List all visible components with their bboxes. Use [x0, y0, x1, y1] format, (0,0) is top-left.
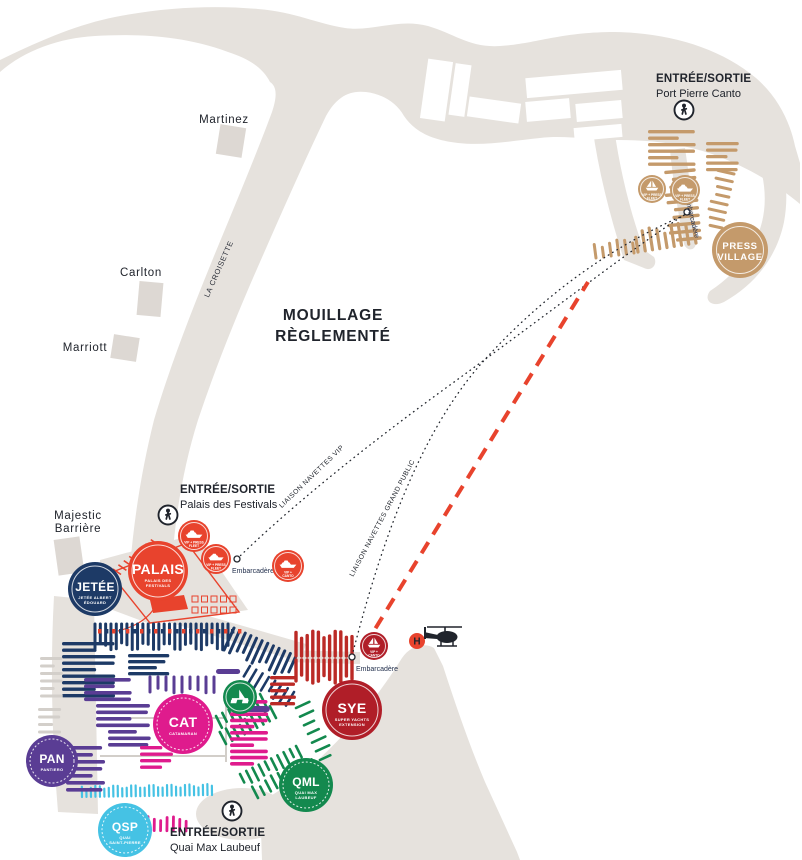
boat: [648, 143, 696, 146]
svg-text:PRESS: PRESS: [722, 241, 757, 252]
shuttle-circle-vip-canto: VIP +CANTO: [272, 550, 304, 582]
boat: [671, 227, 674, 247]
shuttle-line-grand-public: [352, 214, 687, 656]
boat: [230, 750, 268, 754]
boat: [108, 730, 137, 734]
hotel-majestic-line1: Majestic: [54, 510, 102, 522]
entrance-palais-line2: Palais des Festivals: [180, 499, 278, 511]
boat: [230, 731, 268, 735]
boat: [709, 209, 725, 213]
shuttle-circle-sye-canto: VIP +CANTO: [360, 632, 388, 660]
boat: [710, 217, 723, 220]
entrance-icon-palais: [159, 506, 178, 525]
boat: [717, 194, 729, 197]
shuttle-gp-label: LIAISON NAVETTES GRAND PUBLIC: [349, 459, 417, 578]
boat: [40, 680, 63, 683]
boat: [38, 716, 60, 719]
boat: [98, 629, 101, 634]
boat: [140, 766, 162, 769]
boat: [253, 673, 262, 688]
fleet-circle-canto-sail: VIP + PRESSFLEET: [638, 175, 666, 203]
boat: [636, 237, 638, 252]
badge-cat: CAT CATAMARAN: [153, 694, 213, 754]
notice-mouillage-line2: RÈGLEMENTÉ: [275, 328, 391, 345]
fleet-circle-canto-motor: VIP + PRESSFLEET: [670, 175, 700, 205]
boat: [610, 243, 612, 256]
boat: [105, 629, 108, 634]
embarcadere-label-sye: Embarcadère: [356, 666, 398, 673]
boat: [119, 629, 122, 634]
boat: [648, 137, 679, 140]
boat: [128, 666, 157, 669]
svg-text:FLEET: FLEET: [189, 544, 199, 548]
boat: [140, 746, 162, 749]
boat: [706, 162, 739, 165]
boat: [62, 662, 115, 665]
svg-text:FLEET: FLEET: [211, 567, 221, 571]
boat: [168, 629, 171, 634]
boat: [154, 629, 157, 634]
embarcadere-marker-palais: [234, 556, 240, 562]
boat: [96, 704, 150, 708]
boat: [66, 781, 105, 785]
boat: [112, 629, 115, 634]
boat: [230, 719, 268, 723]
boat: [133, 629, 136, 634]
boat: [140, 629, 143, 634]
boat: [648, 130, 695, 133]
boat: [96, 717, 131, 721]
boat: [666, 170, 694, 172]
boat: [66, 788, 102, 792]
svg-text:SYE: SYE: [338, 700, 367, 716]
boat: [633, 243, 634, 253]
boat: [270, 696, 296, 699]
boat: [271, 776, 277, 788]
boat: [244, 666, 250, 676]
entrance-canto-line2: Port Pierre Canto: [656, 88, 741, 100]
boat: [648, 163, 696, 166]
entrance-palais-line1: ENTRÉE/SORTIE: [180, 483, 275, 496]
boat: [140, 753, 173, 756]
svg-text:CANTO: CANTO: [368, 654, 380, 658]
boat: [62, 655, 115, 658]
boat: [210, 629, 213, 634]
badge-qsp: QSP QUAI SAINT-PIERRE: [98, 803, 152, 857]
boat: [316, 745, 329, 751]
shuttle-vip-label: LIAISON NAVETTES VIP: [278, 444, 345, 509]
boat: [617, 240, 619, 255]
boat: [706, 149, 738, 152]
boat: [248, 670, 256, 684]
hotel-carlton: Carlton: [120, 267, 162, 279]
svg-text:FESTIVALS: FESTIVALS: [146, 583, 170, 588]
boat: [265, 762, 269, 770]
shuttle-line-vip: [237, 213, 687, 559]
boat: [270, 689, 287, 692]
boat: [62, 649, 97, 652]
boat: [128, 654, 169, 657]
boat: [231, 629, 234, 634]
boat: [40, 695, 63, 698]
boat: [128, 660, 165, 663]
embarcadere-marker-sye: [349, 654, 355, 660]
hotel-majestic-line2: Barrière: [55, 523, 102, 535]
badge-sye: SYE SUPER YACHTS EXTENSION: [322, 680, 382, 740]
boat: [312, 737, 325, 743]
boat: [217, 629, 220, 634]
boat: [38, 708, 61, 711]
boat: [126, 629, 129, 634]
hotel-marriott: Marriott: [63, 342, 108, 354]
boat: [182, 629, 185, 634]
entrance-icon-laubeuf: [223, 802, 242, 821]
hotel-martinez: Martinez: [199, 114, 249, 126]
entrance-icon-canto: [675, 101, 694, 120]
boat: [147, 629, 150, 634]
boat: [40, 687, 55, 690]
boat: [196, 629, 199, 634]
entrance-laubeuf-line1: ENTRÉE/SORTIE: [170, 826, 265, 839]
boat: [706, 142, 739, 145]
boat: [246, 771, 252, 783]
catamaran-circle: [223, 680, 257, 714]
svg-text:PANTIERO: PANTIERO: [41, 767, 64, 772]
boat: [649, 228, 652, 250]
boat: [230, 725, 254, 729]
boat: [161, 629, 164, 634]
boat: [240, 774, 244, 782]
boat: [648, 150, 695, 153]
boat: [62, 675, 115, 678]
boat: [706, 155, 728, 158]
boat: [38, 731, 61, 734]
boat: [300, 711, 313, 717]
boat: [277, 755, 283, 768]
svg-text:PAN: PAN: [39, 752, 64, 766]
svg-text:QML: QML: [292, 775, 320, 789]
boat: [594, 245, 596, 258]
boat: [108, 737, 151, 741]
badge-jetee: JETÉE JETÉE ALBERT ÉDOUARD: [68, 562, 122, 616]
boat: [96, 724, 150, 728]
svg-text:ÉDOUARD: ÉDOUARD: [84, 600, 106, 605]
svg-text:PALAIS: PALAIS: [132, 561, 184, 577]
boat: [308, 729, 319, 734]
boat: [625, 240, 627, 254]
boat: [252, 768, 258, 780]
boat: [304, 721, 314, 726]
entrance-canto-line1: ENTRÉE/SORTIE: [656, 72, 751, 85]
boat: [84, 685, 115, 689]
svg-text:JETÉE: JETÉE: [75, 579, 115, 594]
helipad-h: H: [413, 637, 420, 648]
boat: [711, 201, 727, 205]
boat: [270, 676, 296, 679]
svg-text:FLEET: FLEET: [647, 197, 657, 201]
svg-text:CATAMARAN: CATAMARAN: [169, 731, 197, 736]
boat: [270, 706, 276, 718]
boat: [189, 629, 192, 634]
port-map-canvas: LIAISON NAVETTES VIP LIAISON NAVETTES GR…: [0, 0, 802, 860]
notice-mouillage-line1: MOUILLAGE: [283, 307, 383, 324]
entrance-laubeuf-line2: Quai Max Laubeuf: [170, 842, 261, 854]
boat: [62, 642, 114, 645]
boat: [230, 743, 254, 747]
boat: [62, 668, 96, 671]
boat: [718, 187, 731, 190]
boat: [648, 156, 678, 159]
boat: [128, 672, 169, 675]
boat: [602, 247, 603, 257]
badge-pan: PAN PANTIERO: [26, 735, 78, 787]
boat: [270, 702, 295, 705]
map-stage: LIAISON NAVETTES VIP LIAISON NAVETTES GR…: [0, 0, 802, 860]
svg-text:VILLAGE: VILLAGE: [717, 252, 762, 263]
badge-qml: QML QUAI MAX LAUBEUF: [279, 758, 333, 812]
boat: [175, 629, 178, 634]
boat: [230, 756, 268, 760]
boat: [40, 657, 62, 660]
svg-text:QSP: QSP: [112, 820, 138, 834]
boat: [38, 723, 53, 726]
boat: [238, 629, 241, 634]
shuttle-line-red-dashed: [364, 282, 588, 647]
boat: [84, 698, 131, 702]
boat: [716, 178, 732, 182]
badge-press-village: PRESS VILLAGE: [712, 222, 768, 278]
boat: [296, 702, 309, 708]
boat: [657, 230, 660, 249]
svg-text:LAUBEUF: LAUBEUF: [295, 795, 316, 800]
svg-text:CANTO: CANTO: [282, 574, 294, 578]
helicopter-icon: [424, 627, 462, 646]
embarcadere-label-palais: Embarcadère: [232, 568, 274, 575]
boat: [84, 678, 131, 682]
boat: [216, 669, 240, 674]
boat: [84, 691, 132, 695]
boat: [710, 225, 722, 228]
boat: [271, 758, 277, 769]
boat: [259, 765, 264, 776]
boat: [230, 737, 268, 741]
boat: [284, 752, 289, 763]
boat: [706, 168, 738, 171]
badge-palais: PALAIS PALAIS DES FESTIVALS: [128, 541, 188, 601]
helipad: H: [409, 633, 425, 649]
fleet-circle-palais-2: VIP + PRESSFLEET: [201, 544, 231, 574]
boat: [296, 746, 302, 757]
boat: [40, 672, 63, 675]
boat: [290, 749, 294, 757]
boat: [665, 233, 667, 247]
boat: [203, 629, 206, 634]
boat: [96, 711, 148, 715]
boat: [261, 677, 269, 690]
svg-text:EXTENSION: EXTENSION: [339, 722, 365, 727]
boat: [270, 683, 295, 686]
boat: [230, 762, 254, 766]
svg-text:CAT: CAT: [169, 714, 198, 730]
boat: [265, 781, 271, 792]
boat: [224, 629, 227, 634]
boat: [40, 665, 55, 668]
svg-text:SAINT-PIERRE: SAINT-PIERRE: [109, 840, 141, 845]
boat: [140, 759, 171, 762]
svg-text:FLEET: FLEET: [680, 198, 690, 202]
fleet-circle-palais-1: VIP + PRESSFLEET: [178, 520, 210, 552]
